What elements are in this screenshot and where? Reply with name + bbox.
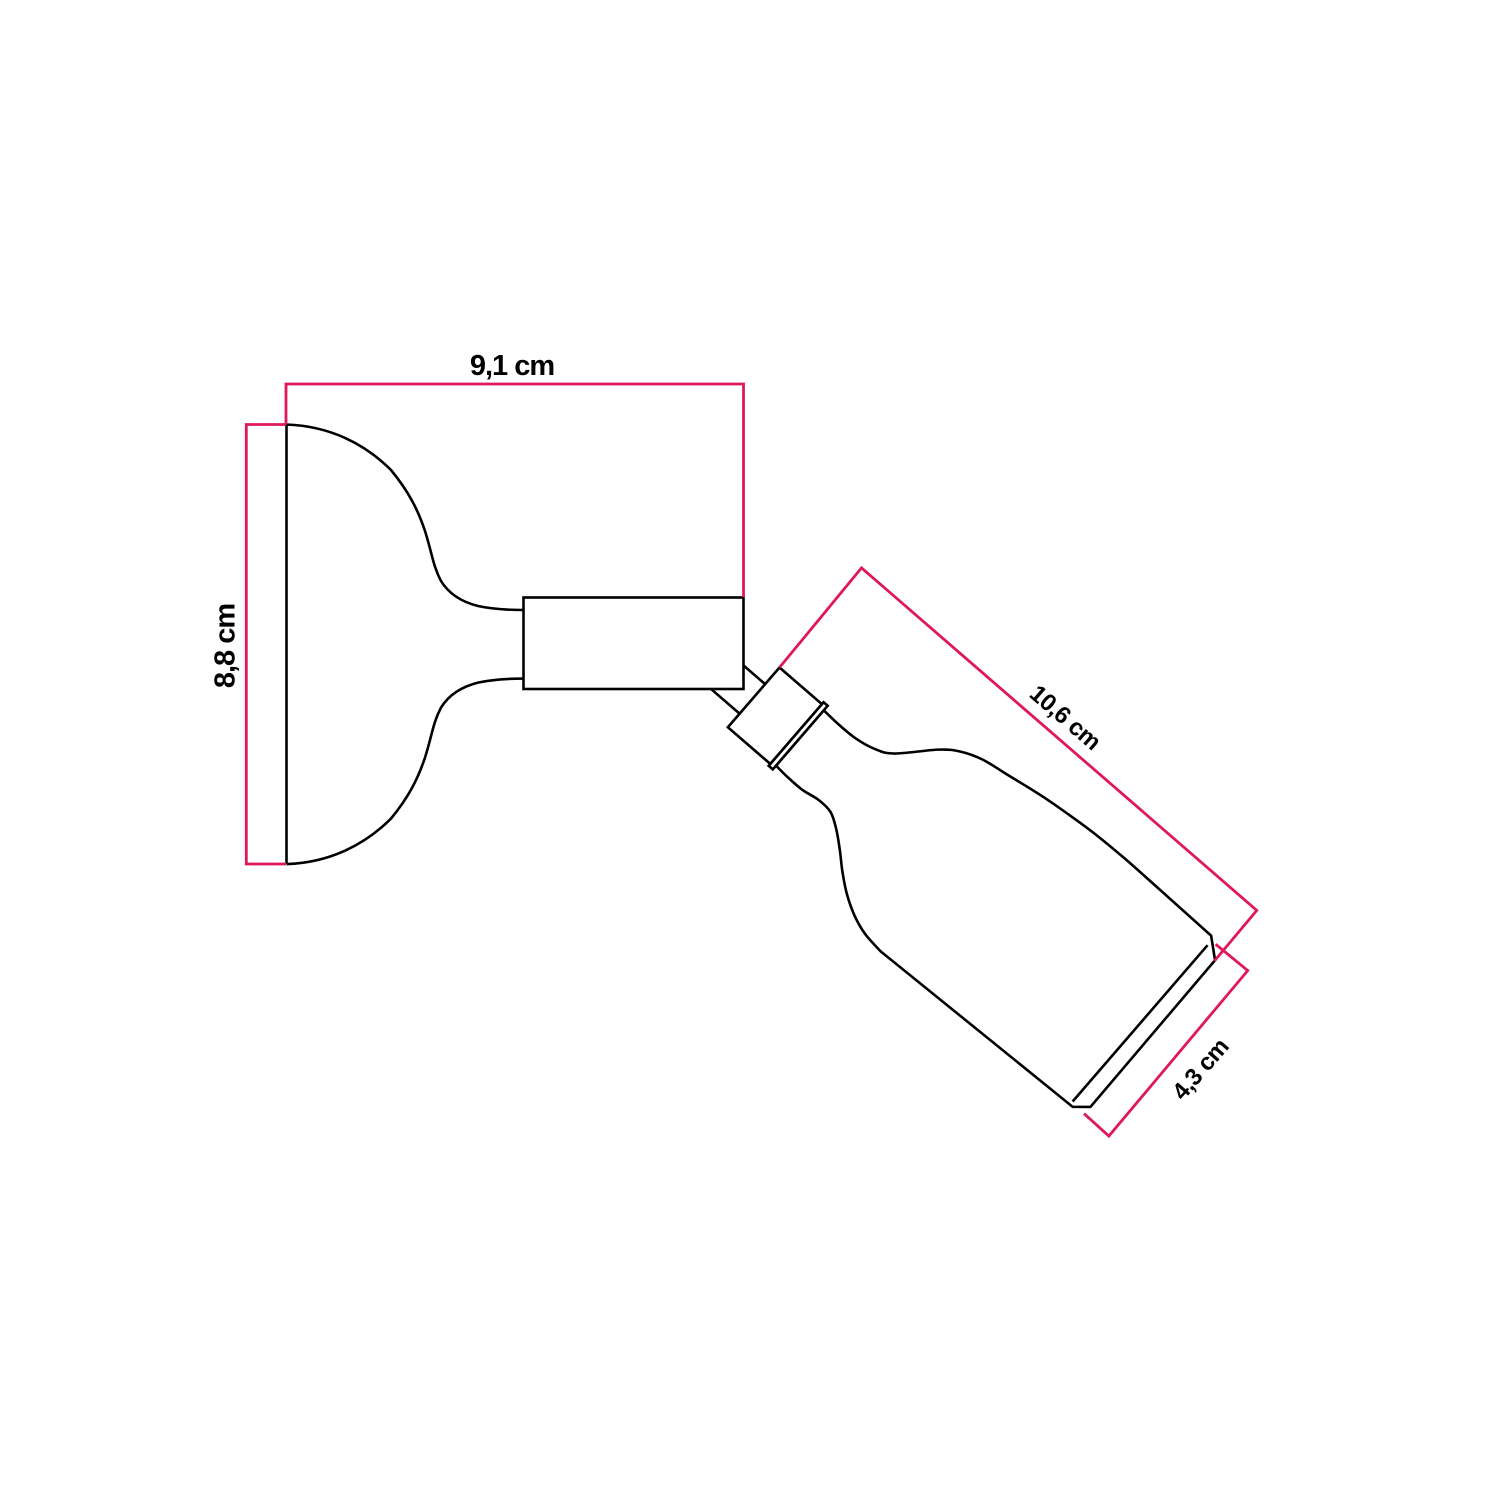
svg-text:8,8 cm: 8,8 cm [210, 604, 242, 688]
svg-text:9,1 cm: 9,1 cm [470, 350, 554, 382]
